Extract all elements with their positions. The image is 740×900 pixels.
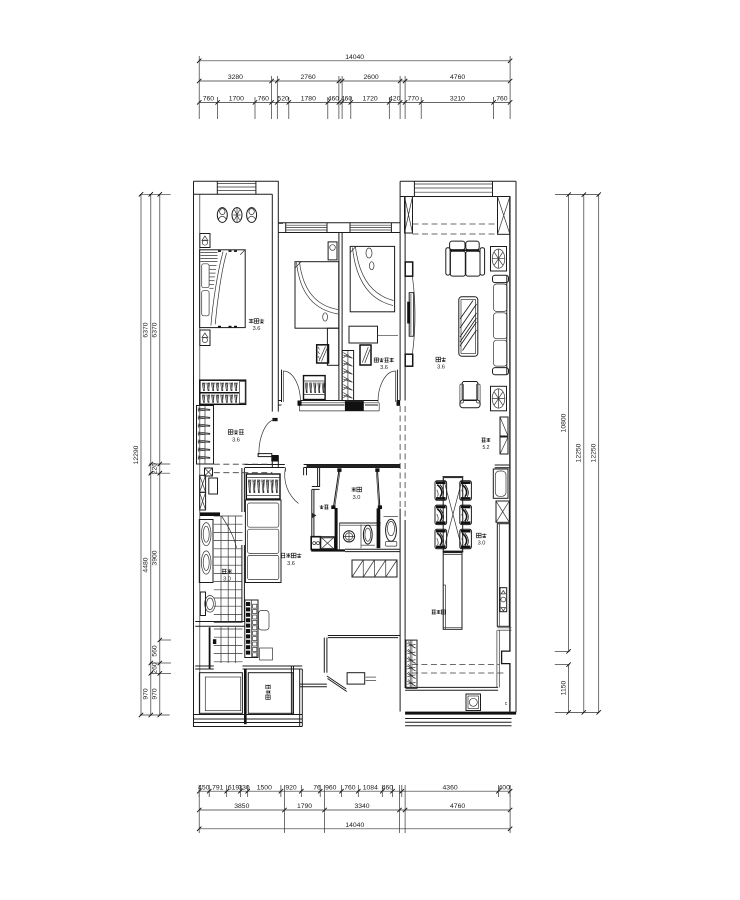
- svg-text:3.0: 3.0: [353, 495, 361, 501]
- svg-text:220: 220: [152, 463, 159, 475]
- svg-text:3.0: 3.0: [478, 541, 486, 547]
- svg-text:3.6: 3.6: [232, 438, 240, 444]
- svg-text:3.6: 3.6: [380, 365, 388, 371]
- svg-text:4360: 4360: [443, 784, 458, 791]
- svg-text:3210: 3210: [450, 96, 465, 103]
- svg-text:12290: 12290: [133, 445, 140, 464]
- svg-text:560: 560: [152, 645, 159, 657]
- svg-text:400: 400: [499, 784, 511, 791]
- svg-text:1084: 1084: [363, 784, 378, 791]
- svg-text:1500: 1500: [257, 784, 272, 791]
- svg-text:3900: 3900: [152, 550, 159, 565]
- svg-text:2760: 2760: [301, 74, 316, 81]
- svg-text:12250: 12250: [591, 443, 598, 462]
- svg-text:3.6: 3.6: [253, 326, 261, 332]
- svg-text:1700: 1700: [229, 96, 244, 103]
- svg-text:1150: 1150: [560, 680, 567, 695]
- svg-text:1790: 1790: [297, 803, 312, 810]
- svg-text:791: 791: [212, 784, 224, 791]
- svg-text:3.0: 3.0: [223, 577, 231, 583]
- svg-text:420: 420: [389, 96, 401, 103]
- svg-text:260: 260: [152, 662, 159, 674]
- svg-text:3340: 3340: [354, 803, 369, 810]
- svg-text:460: 460: [382, 784, 394, 791]
- svg-text:14040: 14040: [345, 54, 364, 61]
- svg-text:4480: 4480: [143, 557, 150, 572]
- svg-text:10800: 10800: [560, 413, 567, 432]
- svg-text:3280: 3280: [228, 74, 243, 81]
- svg-text:460: 460: [328, 96, 340, 103]
- svg-text:4760: 4760: [450, 74, 465, 81]
- svg-text:3.6: 3.6: [287, 561, 295, 567]
- svg-text:4760: 4760: [450, 803, 465, 810]
- svg-text:960: 960: [325, 784, 337, 791]
- svg-text:76: 76: [313, 784, 321, 791]
- svg-text:760: 760: [344, 784, 356, 791]
- svg-text:970: 970: [143, 688, 150, 700]
- svg-text:6370: 6370: [143, 322, 150, 337]
- svg-text:760: 760: [203, 96, 215, 103]
- svg-text:770: 770: [408, 96, 420, 103]
- svg-text:14040: 14040: [345, 822, 364, 829]
- svg-text:920: 920: [285, 784, 297, 791]
- svg-text:450: 450: [198, 784, 210, 791]
- svg-text:3.6: 3.6: [437, 365, 445, 371]
- svg-text:3850: 3850: [234, 803, 249, 810]
- svg-text:760: 760: [496, 96, 508, 103]
- svg-text:520: 520: [277, 96, 289, 103]
- svg-text:760: 760: [258, 96, 270, 103]
- svg-text:1720: 1720: [363, 96, 378, 103]
- svg-text:1780: 1780: [301, 96, 316, 103]
- svg-text:6370: 6370: [152, 322, 159, 337]
- svg-text:5.2: 5.2: [483, 445, 490, 451]
- svg-text:2600: 2600: [364, 74, 379, 81]
- svg-text:12250: 12250: [576, 443, 583, 462]
- svg-text:970: 970: [152, 688, 159, 700]
